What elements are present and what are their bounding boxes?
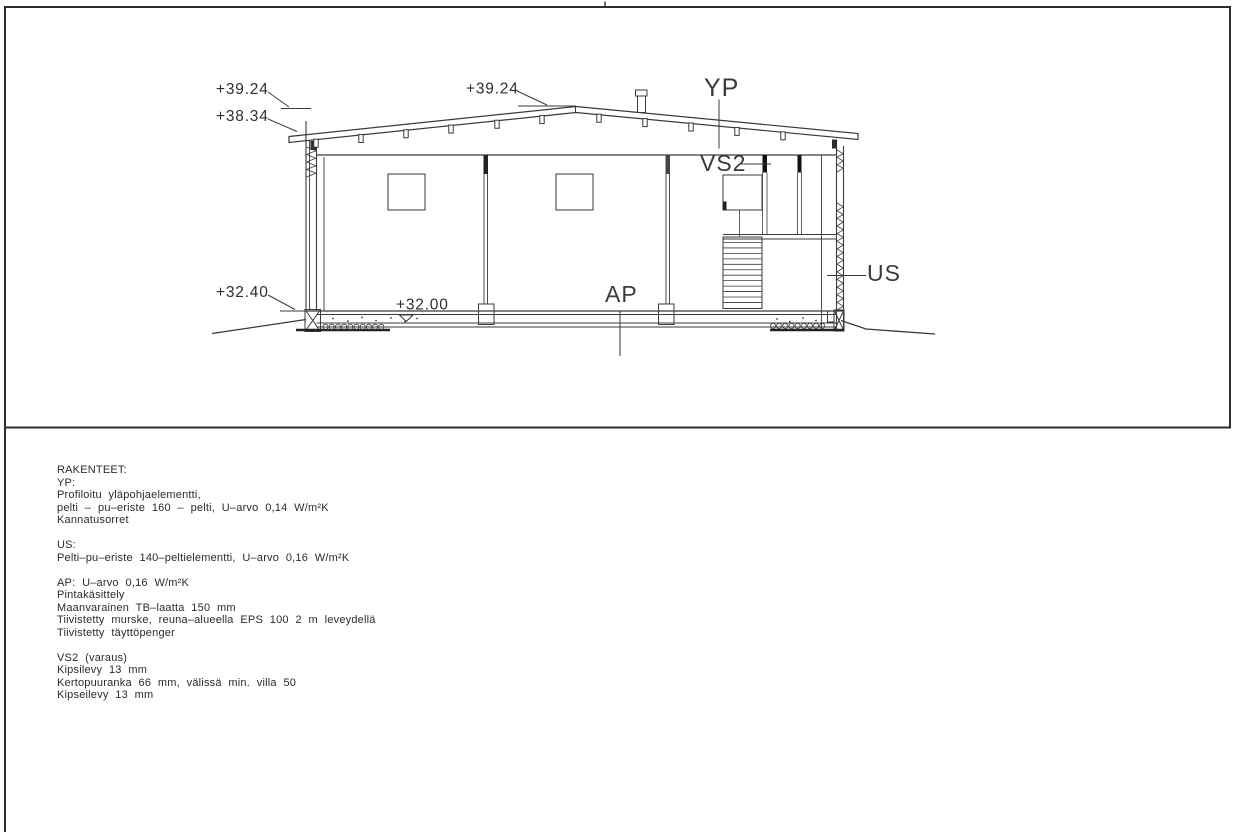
level-ridge-mid: +39.24 <box>466 81 519 98</box>
notes-section-yp: YP: Profiloitu yläpohjaelementti, pelti … <box>57 477 376 527</box>
label-vs2: VS2 <box>700 150 746 176</box>
window-left <box>388 174 425 210</box>
note-line: Tiivistetty murske, reuna–alueella EPS 1… <box>57 614 376 627</box>
stair-opening <box>723 175 762 237</box>
sheet-frame <box>5 2 1230 832</box>
roof-panel <box>289 107 858 143</box>
floor-slab <box>306 311 844 327</box>
window-right <box>556 174 593 210</box>
note-line: Maanvarainen TB–laatta 150 mm <box>57 602 376 615</box>
note-line: YP: <box>57 477 376 490</box>
staircase <box>723 237 762 309</box>
note-line: Kertopuuranka 66 mm, välissä min. villa … <box>57 677 376 690</box>
note-line: Pelti–pu–eriste 140–peltielementti, U–ar… <box>57 552 376 565</box>
note-line: Kannatusorret <box>57 514 376 527</box>
ground-line-right <box>841 321 935 335</box>
left-exterior-wall <box>306 121 324 311</box>
note-line: VS2 (varaus) <box>57 652 376 665</box>
notes-section-ap: AP: U–arvo 0,16 W/m²K Pintakäsittely Maa… <box>57 577 376 640</box>
level-triangle <box>400 315 414 322</box>
drawing-sheet: +39.24 +38.34 +39.24 +32.40 +32.00 YP VS… <box>0 0 1240 832</box>
interior-wall-b <box>659 155 675 325</box>
level-floor: +32.00 <box>396 297 449 314</box>
note-line: Tiivistetty täyttöpenger <box>57 627 376 640</box>
notes-title: RAKENTEET: <box>57 464 376 477</box>
notes-section-us: US: Pelti–pu–eriste 140–peltielementti, … <box>57 539 376 564</box>
notes-section-vs2: VS2 (varaus) Kipsilevy 13 mm Kertopuuran… <box>57 652 376 702</box>
section-drawing: +39.24 +38.34 +39.24 +32.40 +32.00 YP VS… <box>0 0 1240 832</box>
ground-line-left <box>212 320 306 334</box>
drawing-panel-border <box>5 7 1230 428</box>
building-section <box>212 90 935 356</box>
level-ground-left: +32.40 <box>216 284 269 301</box>
chimney <box>636 90 648 113</box>
vs2-partition <box>763 155 802 235</box>
note-line: Pintakäsittely <box>57 589 376 602</box>
level-ridge-left: +39.24 <box>216 81 269 98</box>
label-us: US <box>867 260 901 286</box>
level-eave-left: +38.34 <box>216 108 269 125</box>
label-ap: AP <box>605 281 638 307</box>
note-line: Kipsilevy 13 mm <box>57 664 376 677</box>
label-yp: YP <box>704 74 739 102</box>
note-line: US: <box>57 539 376 552</box>
leader-lines <box>268 91 866 356</box>
note-line: pelti – pu–eriste 160 – pelti, U–arvo 0,… <box>57 502 376 515</box>
note-line: AP: U–arvo 0,16 W/m²K <box>57 577 376 590</box>
interior-wall-a <box>479 155 495 325</box>
note-line: Profiloitu yläpohjaelementti, <box>57 489 376 502</box>
note-line: Kipseilevy 13 mm <box>57 689 376 702</box>
structure-notes: RAKENTEET: YP: Profiloitu yläpohjaelemen… <box>57 464 376 702</box>
